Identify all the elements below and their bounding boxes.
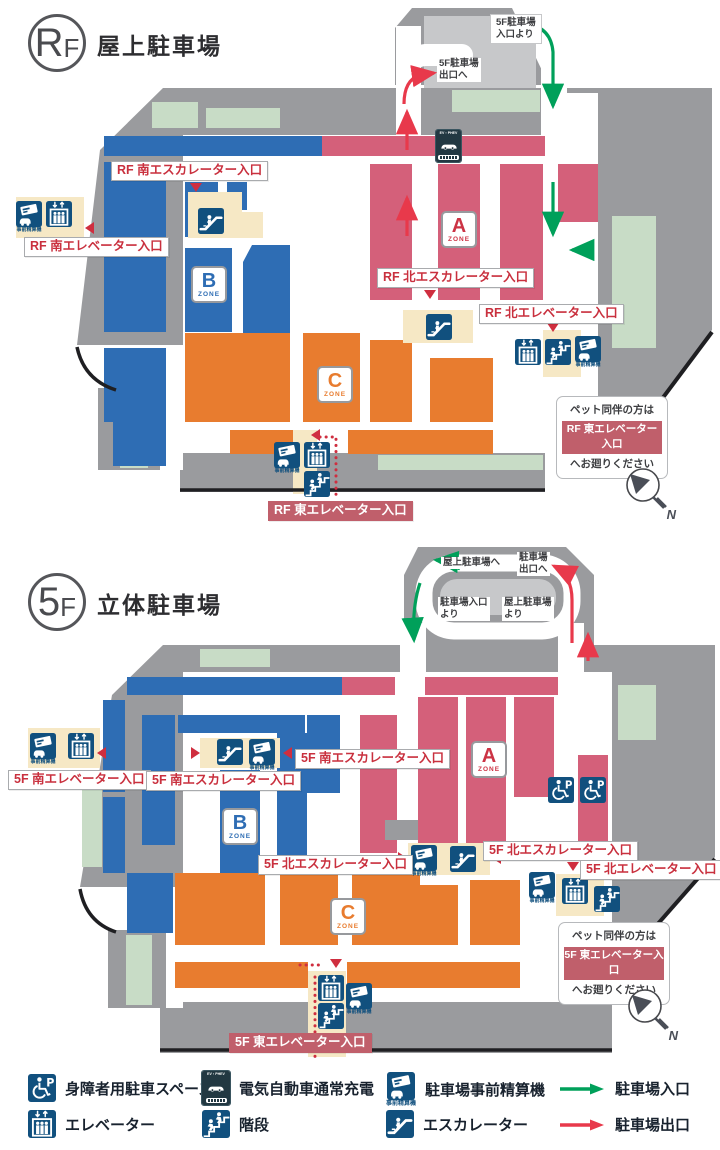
stairs-icon	[545, 339, 571, 365]
pet-note-line2: RF 東エレベーター入口	[562, 421, 662, 453]
stairs-icon	[594, 886, 620, 912]
zone-marker-c: CZONE	[317, 366, 353, 403]
rf-label-north-elevator: RF 北エレベーター入口	[479, 304, 624, 324]
stairs-icon	[202, 1110, 230, 1138]
zone-letter: B	[193, 271, 225, 291]
zone-word: ZONE	[224, 834, 256, 841]
pointer-left-icon	[283, 747, 292, 759]
zone-marker-c: CZONE	[330, 898, 366, 935]
ev-label: EV・PHEV	[207, 1073, 225, 1077]
ev-charging-icon: EV・PHEV	[202, 1071, 230, 1105]
payment-machine-icon: 事前精算機	[346, 983, 372, 1015]
payment-caption: 事前精算機	[30, 760, 55, 765]
wheelchair-parking-icon: P	[580, 777, 606, 803]
payment-icon-glyph	[529, 872, 555, 898]
exit-arrow-icon	[558, 1118, 606, 1132]
pet-note-line2: 5F 東エレベーター入口	[564, 947, 664, 979]
legend-label: 階段	[239, 1114, 269, 1135]
payment-machine-icon: 事前精算機	[386, 1072, 416, 1107]
payment-icon-glyph	[411, 845, 437, 871]
zone-letter: C	[332, 903, 364, 923]
pointer-left-icon	[85, 222, 94, 234]
zone-marker-b: BZONE	[222, 808, 258, 845]
f5-label-south-escalator-right: 5F 南エスカレーター入口	[295, 749, 450, 769]
legend-item-exit: 駐車場出口	[558, 1114, 690, 1135]
zone-letter: A	[443, 216, 475, 236]
stairs-icon	[318, 1003, 344, 1029]
zone-letter: A	[473, 746, 505, 766]
payment-machine-icon: 事前精算機	[575, 336, 601, 368]
legend-label: 駐車場出口	[615, 1114, 690, 1135]
ev-car-glyph	[440, 141, 458, 150]
legend-item-payment-machine: 事前精算機 駐車場事前精算機	[386, 1072, 545, 1107]
elevator-icon	[318, 975, 344, 1001]
legend-label: 駐車場事前精算機	[425, 1079, 545, 1100]
zone-marker-b: BZONE	[191, 266, 227, 303]
f5-badge-letter-small: F	[60, 594, 76, 620]
legend-label: 身障者用駐車スペース	[65, 1078, 213, 1099]
f5-label-north-escalator-right: 5F 北エスカレーター入口	[483, 841, 638, 861]
svg-text:P: P	[46, 1077, 54, 1090]
pointer-down-icon	[567, 862, 579, 871]
zone-marker-a: AZONE	[441, 211, 477, 248]
pet-note-line1: ペット同伴の方は	[562, 403, 662, 418]
stairs-icon	[304, 471, 330, 497]
legend-item-elevator: エレベーター	[28, 1110, 155, 1138]
zone-marker-a: AZONE	[471, 741, 507, 778]
rf-ramp-exit-label: 5F駐車場 出口へ	[437, 58, 481, 82]
f5-label-south-escalator: 5F 南エスカレーター入口	[146, 771, 301, 791]
zone-word: ZONE	[319, 392, 351, 399]
payment-caption: 事前精算機	[411, 872, 436, 877]
zone-word: ZONE	[473, 767, 505, 774]
legend-item-stairs: 階段	[202, 1110, 269, 1138]
escalator-icon	[450, 846, 476, 872]
elevator-icon	[304, 442, 330, 468]
payment-machine-icon: 事前精算機	[30, 733, 56, 765]
payment-machine-icon: 事前精算機	[274, 442, 300, 474]
pointer-right-icon	[191, 747, 200, 759]
wheelchair-parking-icon: P	[548, 777, 574, 803]
rf-page-title: 屋上駐車場	[97, 27, 222, 61]
payment-icon-glyph	[30, 733, 56, 759]
ev-label: EV・PHEV	[440, 132, 458, 136]
payment-caption: 事前精算機	[346, 1010, 371, 1015]
compass-icon: N	[618, 462, 678, 522]
pointer-down-icon	[547, 323, 559, 332]
zone-word: ZONE	[193, 292, 225, 299]
f5-page-title: 立体駐車場	[97, 586, 222, 620]
legend-item-ev-charging: EV・PHEV 電気自動車通常充電	[202, 1071, 374, 1105]
rf-floor-badge: RF	[28, 14, 86, 72]
pointer-left-icon	[97, 747, 106, 759]
payment-machine-icon: 事前精算機	[16, 201, 42, 233]
f5-label-north-escalator: 5F 北エスカレーター入口	[258, 855, 413, 875]
f5-badge-letter: 5	[38, 582, 60, 622]
legend-label: 駐車場入口	[615, 1078, 690, 1099]
compass-n-label: N	[669, 1028, 678, 1043]
legend-item-escalator: エスカレーター	[386, 1110, 528, 1138]
rf-section: RF 屋上駐車場 5F駐車場 入口より 5F駐車場 出口へ EV・PHEV 事前…	[0, 0, 720, 545]
svg-text:P: P	[565, 780, 573, 792]
f5-ramp-from-entrance-label: 駐車場入口 より	[438, 597, 490, 621]
payment-machine-icon: 事前精算機	[249, 739, 275, 771]
pointer-down-icon	[190, 183, 202, 192]
zone-word: ZONE	[332, 924, 364, 931]
pet-note-line1: ペット同伴の方は	[564, 929, 664, 944]
elevator-icon	[46, 201, 72, 227]
payment-icon-glyph	[16, 201, 42, 227]
ev-charging-icon: EV・PHEV	[436, 130, 461, 162]
f5-label-south-elevator: 5F 南エレベーター入口	[8, 770, 151, 790]
payment-icon-glyph	[575, 336, 601, 362]
payment-caption: 事前精算機	[16, 228, 41, 233]
legend-item-wheelchair-parking: P 身障者用駐車スペース	[28, 1074, 213, 1102]
escalator-icon	[217, 739, 243, 765]
zone-letter: C	[319, 371, 351, 391]
payment-machine-icon: 事前精算機	[411, 845, 437, 877]
rf-label-south-escalator: RF 南エスカレーター入口	[111, 161, 268, 181]
escalator-icon	[198, 208, 224, 234]
f5-floor-badge: 5F	[28, 573, 86, 631]
ev-banner	[206, 1098, 227, 1103]
legend-label: エレベーター	[65, 1114, 155, 1135]
rf-ramp-entrance-label: 5F駐車場 入口より	[490, 14, 542, 44]
rf-badge-letter-small: F	[64, 35, 80, 61]
payment-caption: 事前精算機	[386, 1101, 416, 1107]
pointer-down-icon	[424, 290, 436, 299]
svg-text:P: P	[597, 780, 605, 792]
f5-label-north-elevator: 5F 北エレベーター入口	[580, 860, 720, 880]
f5-ramp-from-roof-label: 屋上駐車場 より	[502, 597, 554, 621]
elevator-icon	[515, 339, 541, 365]
rf-label-north-escalator: RF 北エスカレーター入口	[377, 268, 534, 288]
pointer-left-icon	[311, 429, 320, 441]
legend-item-entrance: 駐車場入口	[558, 1078, 690, 1099]
payment-machine-icon: 事前精算機	[529, 872, 555, 904]
rf-badge-letter: R	[35, 23, 64, 63]
rf-label-south-elevator: RF 南エレベーター入口	[24, 237, 169, 257]
payment-icon-glyph	[346, 983, 372, 1009]
payment-caption: 事前精算機	[529, 899, 554, 904]
compass-icon: N	[620, 983, 680, 1043]
zone-letter: B	[224, 813, 256, 833]
entrance-arrow-icon	[558, 1082, 606, 1096]
payment-caption: 事前精算機	[575, 363, 600, 368]
ev-banner	[438, 155, 459, 160]
escalator-icon	[426, 314, 452, 340]
f5-ramp-to-roof-label: 屋上駐車場へ	[441, 557, 502, 569]
legend-label: エスカレーター	[423, 1114, 528, 1135]
pointer-down-icon	[330, 959, 342, 968]
f5-ramp-exit-label: 駐車場 出口へ	[517, 552, 550, 576]
elevator-icon	[28, 1110, 56, 1138]
elevator-icon	[68, 733, 94, 759]
legend-section: P 身障者用駐車スペース EV・PHEV 電気自動車通常充電 事前精算機 駐車場…	[0, 1065, 720, 1150]
payment-icon-glyph	[387, 1072, 415, 1100]
payment-icon-glyph	[249, 739, 275, 765]
elevator-icon	[562, 878, 588, 904]
f5-label-east-elevator: 5F 東エレベーター入口	[229, 1033, 372, 1053]
payment-icon-glyph	[274, 442, 300, 468]
payment-caption: 事前精算機	[274, 469, 299, 474]
parking-map-page: RF 屋上駐車場 5F駐車場 入口より 5F駐車場 出口へ EV・PHEV 事前…	[0, 0, 720, 1150]
rf-label-east-elevator: RF 東エレベーター入口	[268, 501, 413, 521]
zone-word: ZONE	[443, 237, 475, 244]
legend-label: 電気自動車通常充電	[239, 1078, 374, 1099]
escalator-icon	[386, 1110, 414, 1138]
wheelchair-parking-icon: P	[28, 1074, 56, 1102]
compass-n-label: N	[667, 507, 676, 522]
f5-section: 5F 立体駐車場 屋上駐車場へ 駐車場 出口へ 駐車場入口 より 屋上駐車場 よ…	[0, 545, 720, 1065]
